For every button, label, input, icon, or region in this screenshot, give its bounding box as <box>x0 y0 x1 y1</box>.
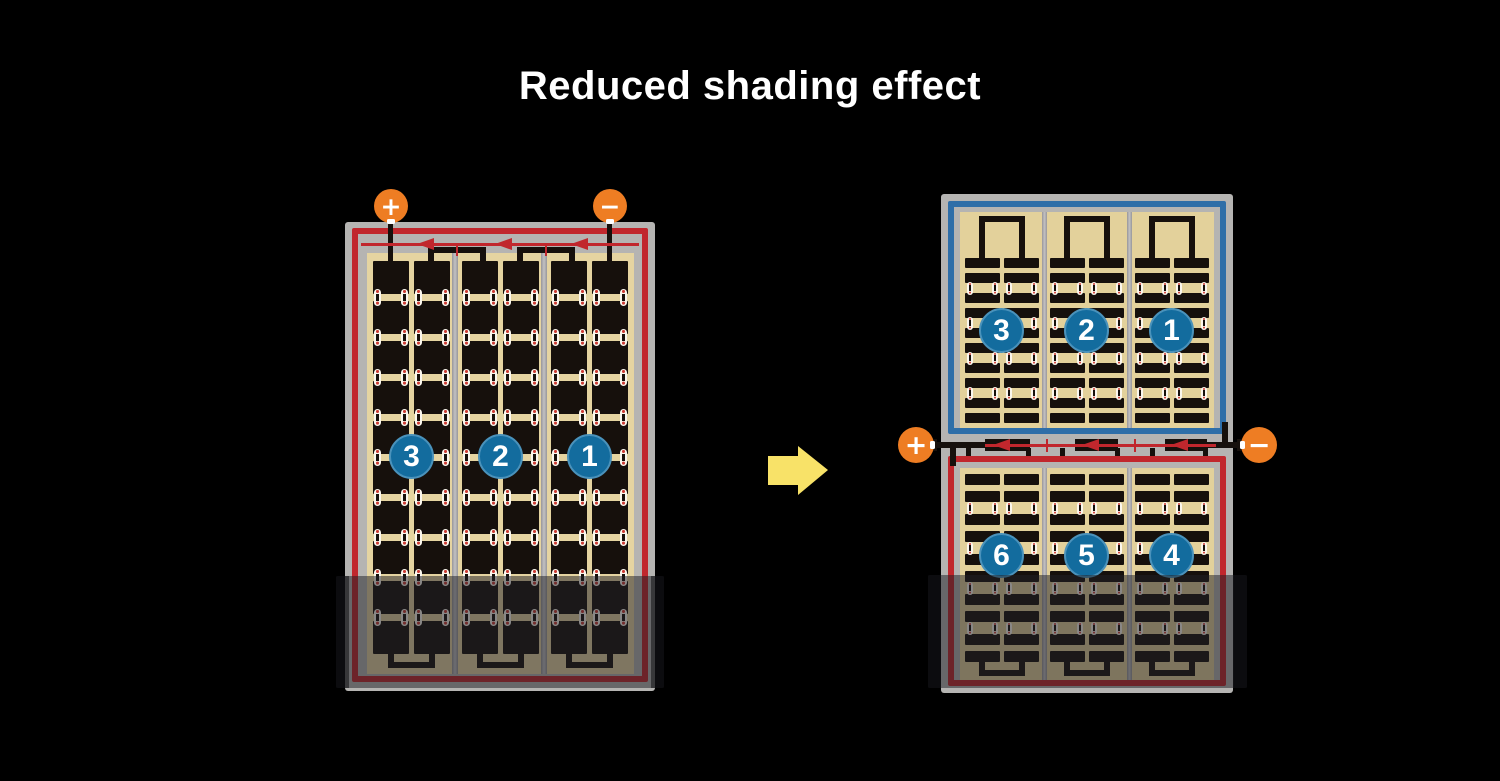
cell-connector <box>1201 282 1207 295</box>
minus-terminal-icon: − <box>1241 427 1277 463</box>
cell-connector <box>1201 352 1207 365</box>
cell-connector <box>579 329 586 346</box>
cell-connector <box>552 449 559 466</box>
cell-connector <box>463 529 470 546</box>
cell-connector <box>415 329 422 346</box>
cell-connector <box>1091 387 1097 400</box>
cell-connector <box>1031 542 1037 555</box>
solar-cell-strip <box>1135 398 1170 408</box>
cell-connector <box>1052 317 1058 330</box>
solar-cell-strip <box>1004 398 1039 408</box>
solar-cell-strip <box>1174 474 1209 485</box>
cell-connector <box>401 289 408 306</box>
cell-connector <box>374 449 381 466</box>
cell-connector <box>1162 387 1168 400</box>
cell-connector <box>415 289 422 306</box>
plus-terminal-icon: + <box>374 189 408 223</box>
bypass-diode-icon <box>417 238 434 250</box>
cell-connector <box>490 289 497 306</box>
solar-cell-strip <box>1050 398 1085 408</box>
cell-connector <box>1052 502 1058 515</box>
cell-connector <box>593 529 600 546</box>
cell-connector <box>967 387 973 400</box>
terminal-stem <box>388 214 393 284</box>
cell-connector <box>1077 387 1083 400</box>
solar-cell-strip <box>1135 413 1170 423</box>
cell-connector <box>531 369 538 386</box>
cell-connector <box>490 489 497 506</box>
string-badge: 2 <box>1064 308 1109 353</box>
cell-connector <box>1116 502 1122 515</box>
cell-connector <box>1201 542 1207 555</box>
cell-connector <box>1031 282 1037 295</box>
cell-connector <box>552 369 559 386</box>
cell-connector <box>1006 352 1012 365</box>
solar-cell-strip <box>1174 413 1209 423</box>
cell-connector <box>401 409 408 426</box>
cell-connector <box>1116 282 1122 295</box>
solar-cell-strip <box>965 491 1000 502</box>
cell-connector <box>620 529 627 546</box>
solar-cell-strip <box>1089 474 1124 485</box>
diode-branch-tick <box>456 243 458 256</box>
cell-connector <box>504 369 511 386</box>
cell-connector <box>620 369 627 386</box>
cell-connector <box>1006 282 1012 295</box>
cell-connector <box>593 409 600 426</box>
cell-connector <box>1201 387 1207 400</box>
minus-symbol: − <box>1248 432 1271 459</box>
shading-overlay-edge <box>336 576 349 688</box>
cell-connector <box>967 317 973 330</box>
column-divider <box>1042 212 1047 428</box>
terminal-tab <box>606 219 614 224</box>
cell-connector <box>401 329 408 346</box>
cell-connector <box>1176 282 1182 295</box>
string-badge: 5 <box>1064 533 1109 578</box>
cell-connector <box>531 529 538 546</box>
cell-connector <box>504 489 511 506</box>
string-top-link <box>1104 216 1110 262</box>
cell-connector <box>593 329 600 346</box>
plus-terminal-icon: + <box>898 427 934 463</box>
cell-connector <box>1091 352 1097 365</box>
solar-cell-strip <box>1135 514 1170 525</box>
cell-connector <box>442 489 449 506</box>
cell-connector <box>992 282 998 295</box>
cell-connector <box>374 409 381 426</box>
cell-connector <box>490 369 497 386</box>
solar-cell-strip <box>965 363 1000 373</box>
cell-connector <box>552 329 559 346</box>
cell-connector <box>552 529 559 546</box>
cell-connector <box>1201 502 1207 515</box>
cell-connector <box>1006 502 1012 515</box>
solar-cell-strip <box>965 514 1000 525</box>
cell-connector <box>531 489 538 506</box>
string-badge: 1 <box>567 434 612 479</box>
cell-connector <box>1077 502 1083 515</box>
solar-cell-strip <box>1089 413 1124 423</box>
terminal-tab <box>387 219 395 224</box>
cell-connector <box>415 489 422 506</box>
cell-connector <box>1162 282 1168 295</box>
cell-connector <box>1116 317 1122 330</box>
cell-connector <box>415 369 422 386</box>
solar-cell-strip <box>1050 474 1085 485</box>
cell-connector <box>579 369 586 386</box>
string-top-link <box>480 247 486 269</box>
cell-connector <box>1116 352 1122 365</box>
bypass-diode-icon <box>495 238 512 250</box>
solar-cell-strip <box>965 293 1000 303</box>
cell-connector <box>374 369 381 386</box>
cell-connector <box>967 542 973 555</box>
cell-connector <box>442 529 449 546</box>
solar-cell-strip <box>1004 514 1039 525</box>
solar-cell-strip <box>1050 363 1085 373</box>
string-badge: 6 <box>979 533 1024 578</box>
solar-cell-strip <box>1004 293 1039 303</box>
cell-connector <box>552 489 559 506</box>
cell-connector <box>1031 352 1037 365</box>
string-top-link <box>1064 216 1070 262</box>
terminal-stem <box>607 214 612 284</box>
minus-terminal-icon: − <box>593 189 627 223</box>
cell-connector <box>374 529 381 546</box>
cell-connector <box>593 489 600 506</box>
diode-branch-tick <box>545 243 547 256</box>
cell-connector <box>463 409 470 426</box>
cell-connector <box>579 489 586 506</box>
solar-cell-strip <box>1135 491 1170 502</box>
cell-connector <box>579 409 586 426</box>
cell-connector <box>490 409 497 426</box>
solar-cell-strip <box>965 474 1000 485</box>
string-top-link <box>1149 216 1155 262</box>
solar-cell-strip <box>1004 413 1039 423</box>
cell-connector <box>1116 542 1122 555</box>
cell-connector <box>1162 502 1168 515</box>
cell-connector <box>1031 387 1037 400</box>
string-top-link <box>1189 216 1195 262</box>
bypass-diode-icon <box>571 238 588 250</box>
string-top-link <box>517 247 523 269</box>
cell-connector <box>992 352 998 365</box>
right-module-top-half: 3 2 1 <box>941 194 1233 441</box>
cell-connector <box>1137 542 1143 555</box>
cell-connector <box>1091 502 1097 515</box>
cell-connector <box>442 449 449 466</box>
cell-connector <box>401 369 408 386</box>
cell-connector <box>531 409 538 426</box>
cell-connector <box>1052 542 1058 555</box>
shading-overlay <box>336 576 664 688</box>
plus-symbol: + <box>381 194 402 219</box>
cell-connector <box>1201 317 1207 330</box>
string-top-link <box>1019 216 1025 262</box>
cell-connector <box>504 289 511 306</box>
shading-overlay-edge <box>651 576 664 688</box>
solar-cell-strip <box>1174 491 1209 502</box>
cell-connector <box>620 329 627 346</box>
cell-connector <box>374 489 381 506</box>
cell-connector <box>1137 502 1143 515</box>
cell-connector <box>1091 282 1097 295</box>
cell-connector <box>1176 352 1182 365</box>
string-badge: 2 <box>478 434 523 479</box>
cell-connector <box>415 409 422 426</box>
solar-cell-strip <box>1004 491 1039 502</box>
cell-connector <box>531 289 538 306</box>
terminal-tab <box>930 441 935 449</box>
cell-connector <box>620 409 627 426</box>
solar-cell-strip <box>1089 293 1124 303</box>
cell-connector <box>1137 317 1143 330</box>
cell-connector <box>490 329 497 346</box>
string-badge: 3 <box>979 308 1024 353</box>
solar-cell-strip <box>1174 363 1209 373</box>
cell-connector <box>1137 352 1143 365</box>
cell-connector <box>1052 387 1058 400</box>
left-module: + − 3 2 1 <box>345 222 655 691</box>
cell-connector <box>1176 387 1182 400</box>
cell-connector <box>463 449 470 466</box>
cell-connector <box>552 409 559 426</box>
solar-cell-strip <box>965 413 1000 423</box>
plus-symbol: + <box>905 432 928 459</box>
string-top-link <box>569 247 575 269</box>
solar-cell-strip <box>1174 514 1209 525</box>
cell-connector <box>620 489 627 506</box>
cell-connector <box>463 329 470 346</box>
solar-cell-strip <box>1050 514 1085 525</box>
string-top-link <box>428 247 434 269</box>
center-bus-wiring <box>0 0 1500 781</box>
cell-connector <box>374 289 381 306</box>
cell-connector <box>967 352 973 365</box>
solar-cell-strip <box>1135 293 1170 303</box>
solar-cell-strip <box>1174 398 1209 408</box>
cell-connector <box>401 529 408 546</box>
cell-connector <box>1006 387 1012 400</box>
cell-connector <box>463 489 470 506</box>
cell-connector <box>531 449 538 466</box>
solar-cell-strip <box>1135 363 1170 373</box>
cell-connector <box>1176 502 1182 515</box>
cell-connector <box>579 289 586 306</box>
cell-connector <box>442 289 449 306</box>
shading-overlay-edge <box>928 575 941 688</box>
solar-cell-strip <box>1089 363 1124 373</box>
cell-connector <box>1052 282 1058 295</box>
solar-cell-strip <box>1089 491 1124 502</box>
arrow-head <box>798 446 828 495</box>
cell-connector <box>620 289 627 306</box>
cell-connector <box>967 282 973 295</box>
arrow-right-icon <box>768 446 828 496</box>
column-divider <box>1127 212 1132 428</box>
cell-connector <box>442 329 449 346</box>
solar-cell-strip <box>1004 363 1039 373</box>
solar-cell-strip <box>1050 293 1085 303</box>
terminal-tab <box>1240 441 1245 449</box>
cell-connector <box>442 369 449 386</box>
string-badge: 4 <box>1149 533 1194 578</box>
minus-symbol: − <box>600 194 621 219</box>
shading-overlay <box>928 575 1247 688</box>
cell-connector <box>1137 387 1143 400</box>
cell-connector <box>1077 352 1083 365</box>
cell-connector <box>490 529 497 546</box>
cell-connector <box>552 289 559 306</box>
cell-connector <box>1052 352 1058 365</box>
cell-connector <box>593 289 600 306</box>
cell-connector <box>442 409 449 426</box>
solar-cell-strip <box>1089 398 1124 408</box>
string-badge: 3 <box>389 434 434 479</box>
cell-connector <box>504 529 511 546</box>
solar-cell-strip <box>1174 293 1209 303</box>
cell-connector <box>992 502 998 515</box>
solar-cell-strip <box>1004 474 1039 485</box>
cell-connector <box>504 329 511 346</box>
cell-connector <box>593 369 600 386</box>
cell-connector <box>463 289 470 306</box>
cell-connector <box>967 502 973 515</box>
top-wiring <box>345 222 655 302</box>
string-top-link <box>979 216 985 262</box>
cell-connector <box>1162 352 1168 365</box>
arrow-body <box>768 456 800 485</box>
cell-connector <box>992 387 998 400</box>
cell-connector <box>1137 282 1143 295</box>
solar-cell-strip <box>1135 474 1170 485</box>
page-title: Reduced shading effect <box>0 64 1500 109</box>
cell-connector <box>415 529 422 546</box>
cell-connector <box>1031 317 1037 330</box>
cell-connector <box>1077 282 1083 295</box>
cell-connector <box>401 489 408 506</box>
shading-overlay-edge <box>1234 575 1247 688</box>
cell-connector <box>579 529 586 546</box>
cell-connector <box>620 449 627 466</box>
cell-connector <box>531 329 538 346</box>
cell-connector <box>1031 502 1037 515</box>
cell-connector <box>504 409 511 426</box>
solar-cell-strip <box>965 398 1000 408</box>
solar-cell-strip <box>1050 413 1085 423</box>
string-badge: 1 <box>1149 308 1194 353</box>
solar-cell-strip <box>1089 514 1124 525</box>
solar-cell-strip <box>1050 491 1085 502</box>
cell-connector <box>374 329 381 346</box>
cell-connector <box>1116 387 1122 400</box>
cell-connector <box>463 369 470 386</box>
bypass-diode-line <box>985 444 1216 447</box>
